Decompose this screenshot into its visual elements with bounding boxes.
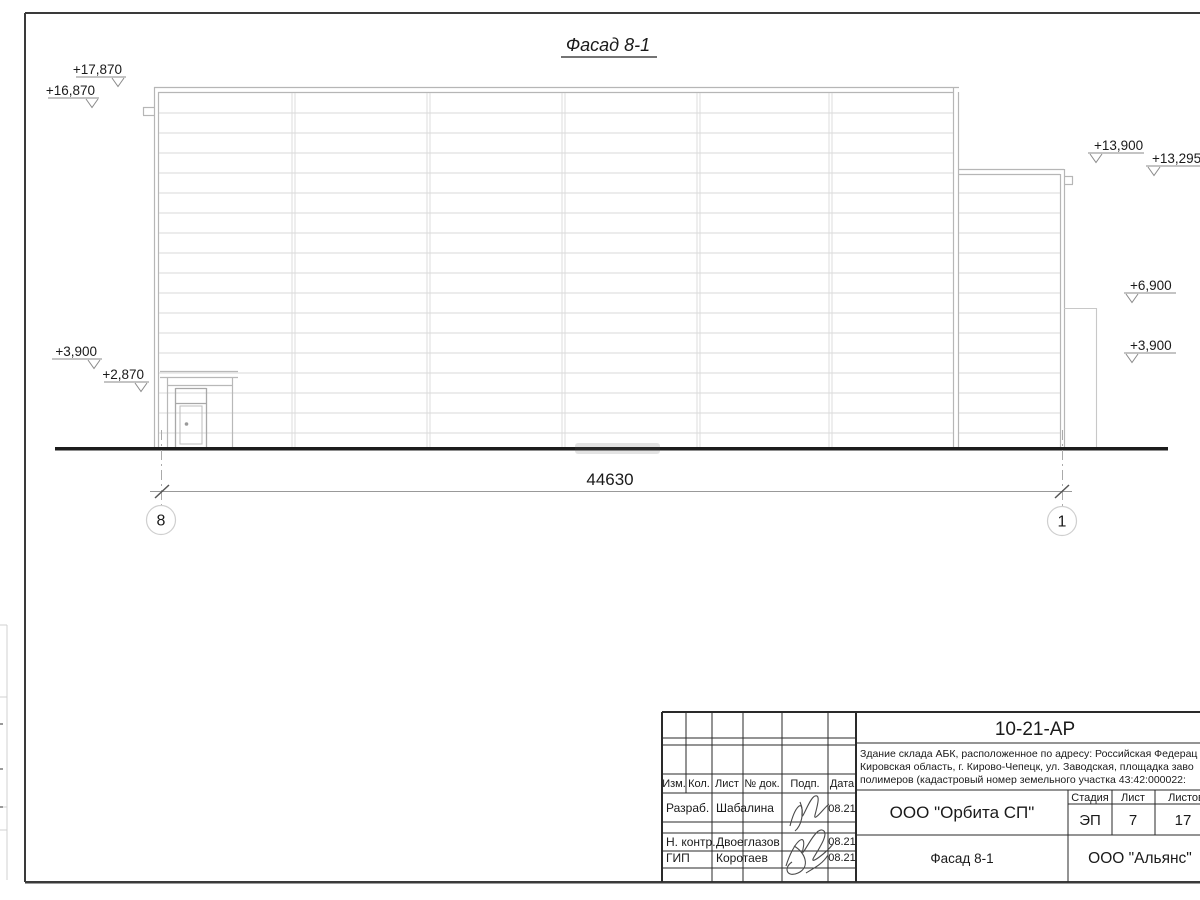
elevation-label: +2,870: [102, 367, 144, 382]
tb-company: ООО "Орбита СП": [890, 803, 1035, 822]
elevation-mark-3900-left: +3,900: [52, 344, 102, 369]
elevation-label: +17,870: [73, 62, 122, 77]
tb-col-list: Лист: [715, 778, 739, 790]
elevation-mark-13900: +13,900: [1088, 138, 1144, 163]
dimension-group: 44630: [150, 430, 1072, 506]
facade-panel-joints: [292, 93, 832, 447]
tb-date-razrab: 08.21: [828, 803, 856, 815]
elevation-mark-13295: +13,295: [1146, 151, 1200, 176]
tb-description-line1: Здание склада АБК, расположенное по адре…: [860, 748, 1197, 760]
facade-annex-outline: [958, 169, 1073, 448]
tb-sheets-value: 17: [1175, 812, 1192, 829]
tb-col-izm: Изм.: [662, 778, 686, 790]
tb-description-line2: Кировская область, г. Кирово-Чепецк, ул.…: [860, 761, 1194, 773]
elevation-marks: +17,870 +16,870 +13,900 +13,295 +6,900 +…: [46, 62, 1200, 392]
tb-name-razrab: Шабалина: [716, 801, 774, 815]
left-margin-table: [0, 625, 7, 880]
elevation-label: +13,295: [1152, 151, 1200, 166]
tb-contractor: ООО "Альянс": [1088, 850, 1192, 867]
axis-label-8: 8: [157, 513, 166, 530]
tb-sheet-value: 7: [1129, 812, 1137, 829]
entrance-door-assembly: [160, 372, 238, 448]
door-frame: [176, 388, 207, 447]
drawing-title: Фасад 8-1: [566, 35, 650, 55]
axis-label-1: 1: [1058, 514, 1067, 531]
elevation-mark-6900: +6,900: [1124, 278, 1176, 303]
tb-role-razrab: Разраб.: [666, 801, 709, 815]
facade-drawing-canvas: Фасад 8-1: [0, 0, 1200, 900]
elevation-mark-3900-right: +3,900: [1124, 338, 1176, 363]
axis-bubble-1: 1: [1048, 507, 1077, 536]
facade-panel-lines: [159, 113, 953, 433]
tb-doc-number: 10-21-АР: [995, 719, 1075, 740]
tb-name-gip: Коротаев: [716, 851, 768, 865]
tb-sheet-title: Фасад 8-1: [930, 851, 993, 866]
drawing-sheet: Фасад 8-1: [0, 0, 1200, 900]
tb-sheet-label: Лист: [1121, 792, 1145, 804]
tb-col-podp: Подп.: [790, 778, 819, 790]
tb-col-kol: Кол.: [688, 778, 710, 790]
elevation-label: +3,900: [55, 344, 97, 359]
tb-date-nkontr: 08.21: [828, 836, 856, 848]
tb-date-gip: 08.21: [828, 852, 856, 864]
door-handle: [185, 422, 189, 426]
tb-stage-label: Стадия: [1071, 792, 1109, 804]
elevation-mark-16870: +16,870: [46, 83, 99, 108]
watermark-smudge: [575, 443, 660, 454]
tb-col-data: Дата: [830, 778, 855, 790]
facade-right-low-structure: [1064, 308, 1097, 447]
tb-name-nkontr: Двоеглазов: [716, 835, 780, 849]
annex-panel-lines: [959, 193, 1060, 433]
elevation-mark-2870: +2,870: [102, 367, 149, 392]
elevation-label: +16,870: [46, 83, 95, 98]
tb-sheets-label: Листов: [1168, 792, 1200, 804]
elevation-label: +6,900: [1130, 278, 1172, 293]
elevation-label: +3,900: [1130, 338, 1172, 353]
signature-razrab: [790, 796, 829, 831]
elevation-label: +13,900: [1094, 138, 1143, 153]
title-block: Изм. Кол. Лист № док. Подп. Дата Разраб.…: [662, 712, 1200, 882]
tb-role-nkontr: Н. контр.: [666, 835, 716, 849]
dimension-value: 44630: [586, 470, 633, 489]
tb-col-ndok: № док.: [744, 778, 779, 790]
axis-bubble-8: 8: [147, 506, 176, 535]
facade-tall-block-outline: [143, 87, 959, 448]
tb-description-line3: полимеров (кадастровый номер земельного …: [860, 774, 1186, 786]
tb-stage-value: ЭП: [1079, 812, 1101, 829]
tb-role-gip: ГИП: [666, 851, 690, 865]
